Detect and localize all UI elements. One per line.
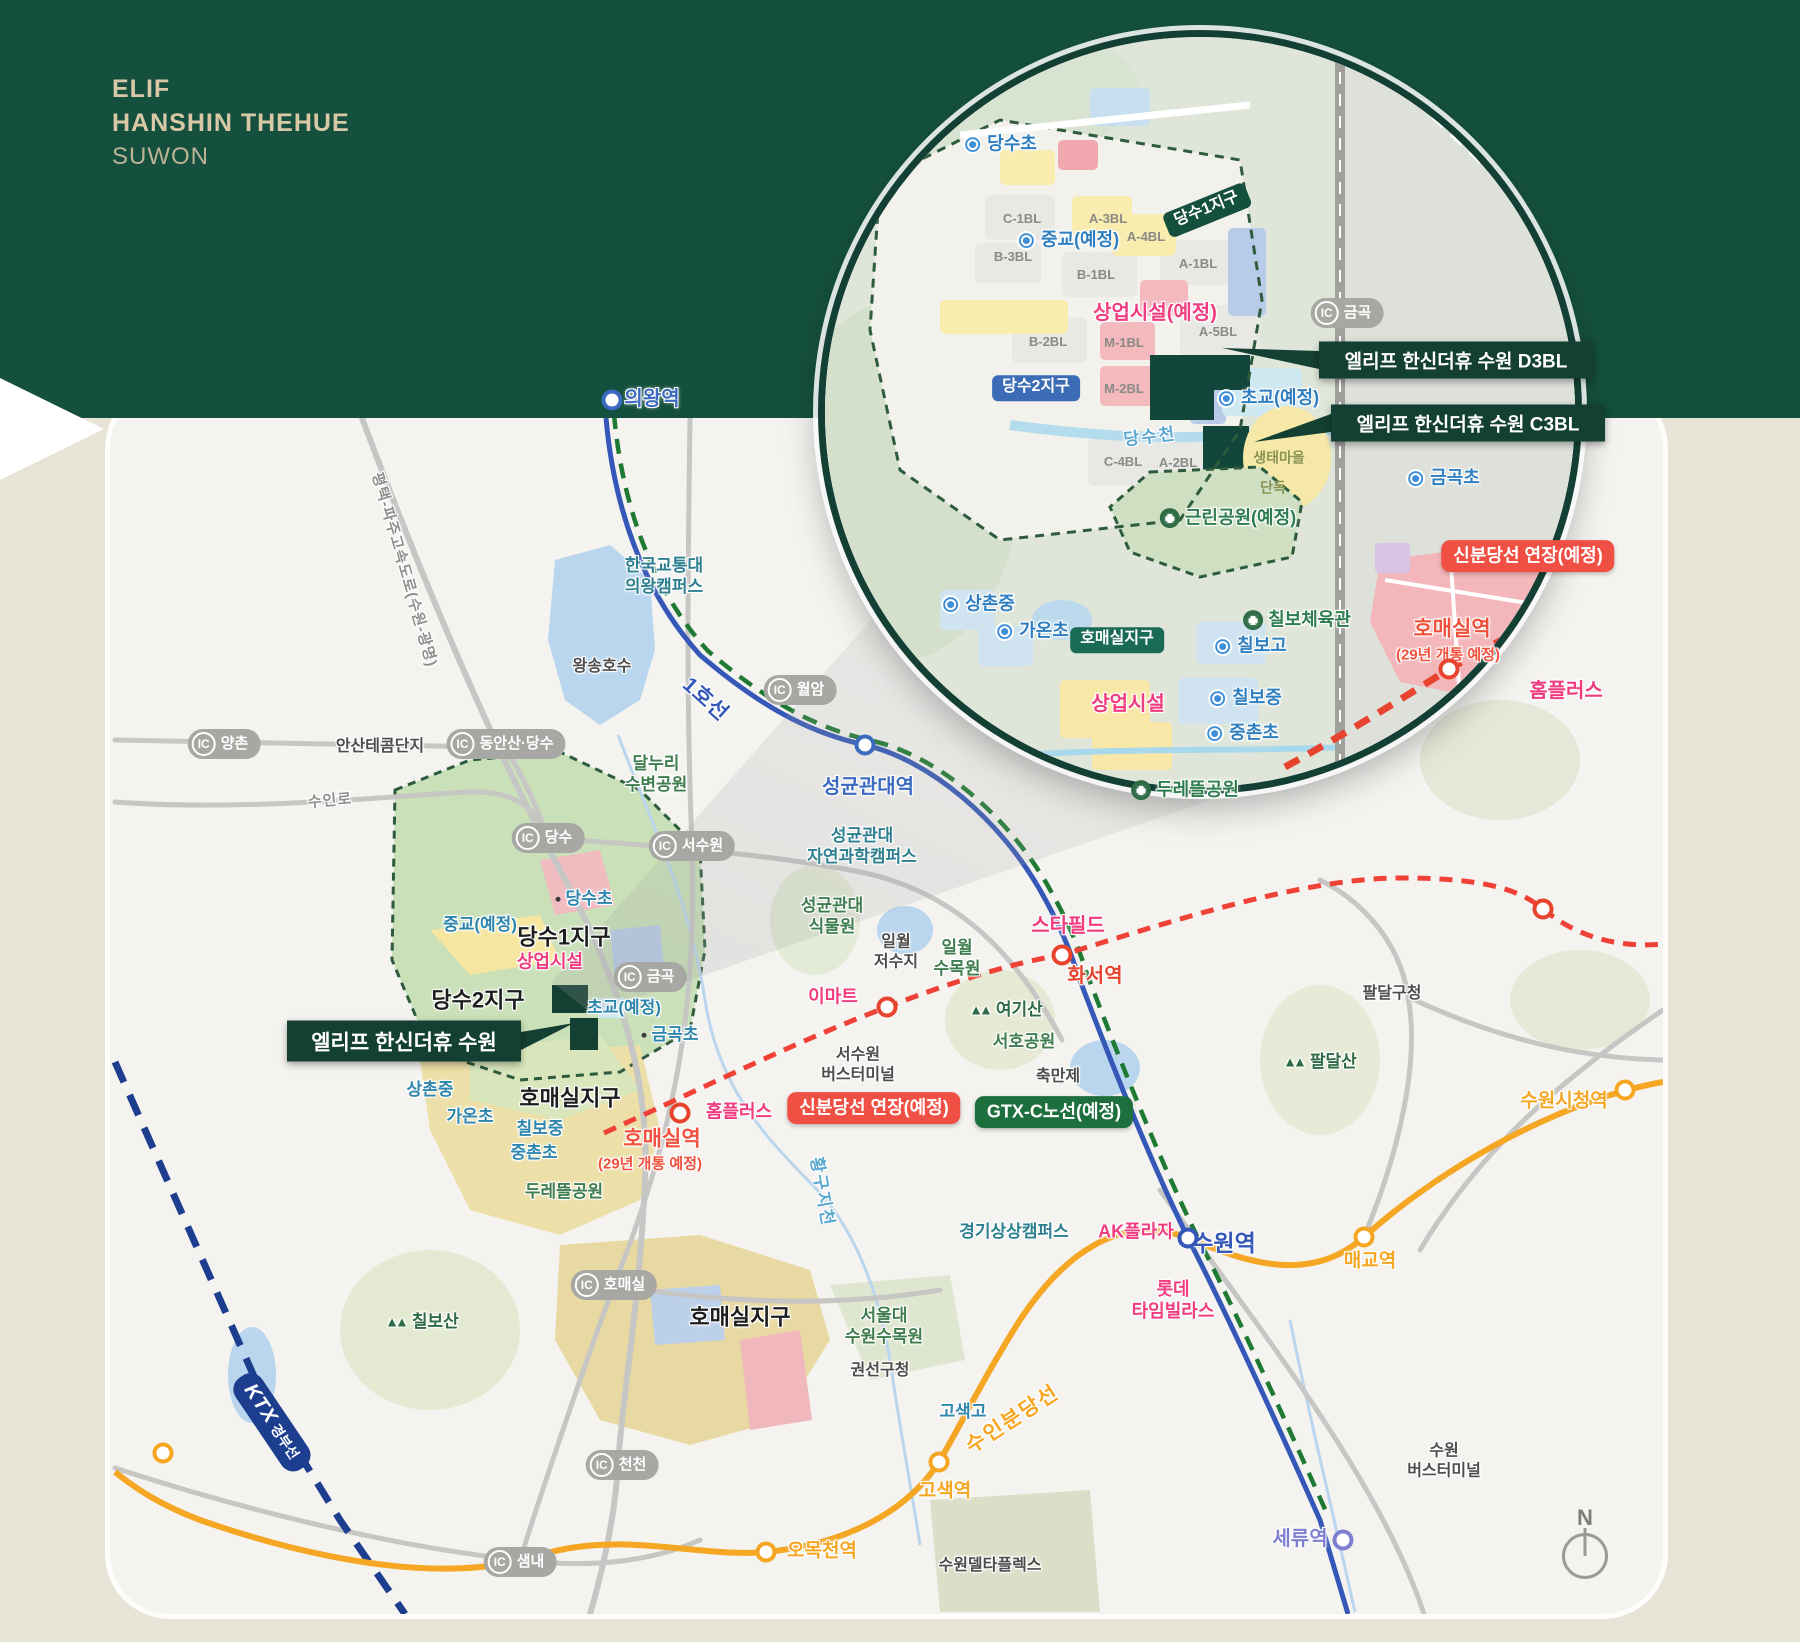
map-label-상업시설: 상업시설 — [517, 951, 583, 973]
map-label-매교역: 매교역 — [1344, 1251, 1396, 1274]
inset-label-칠보체육관: ♣칠보체육관 — [1243, 609, 1351, 631]
map-label-샘내: IC샘내 — [484, 1547, 557, 1577]
interchange-icon: IC — [768, 678, 792, 702]
compass-rose: N — [1560, 1505, 1610, 1579]
interchange-icon: IC — [653, 834, 677, 858]
map-label-화서역: 화서역 — [1067, 965, 1122, 989]
map-label-동안산·당수: IC동안산·당수 — [447, 729, 566, 759]
interchange-icon: IC — [488, 1550, 512, 1574]
school-drop-icon — [963, 135, 982, 154]
inset-label-A-4BL: A-4BL — [1127, 228, 1165, 244]
inset-label-A-1BL: A-1BL — [1179, 255, 1217, 271]
inset-label-칠보고: 칠보고 — [1213, 635, 1287, 657]
map-label-수원역: 수원역 — [1192, 1229, 1255, 1257]
map-label-롯데-타임빌라스: 롯데 타임빌라스 — [1132, 1278, 1215, 1322]
title-line-1: ELIF — [112, 72, 350, 106]
title-line-3: SUWON — [112, 140, 350, 174]
callout-엘리프-한신더휴-수원-C3BL: 엘리프 한신더휴 수원 C3BL — [1331, 405, 1605, 442]
map-label-서수원-버스터미널: 서수원 버스터미널 — [821, 1046, 895, 1085]
map-label-고색역: 고색역 — [919, 1481, 971, 1504]
school-drop-icon — [1205, 724, 1224, 743]
interchange-icon: IC — [192, 732, 216, 756]
map-label-권선구청: 권선구청 — [851, 1362, 910, 1382]
map-label-두레뜰공원: 두레뜰공원 — [525, 1182, 603, 1203]
park-tree-icon: ♣ — [1160, 508, 1180, 528]
school-drop-icon — [1017, 231, 1036, 250]
map-label-안산테콤단지: 안산테콤단지 — [336, 738, 424, 758]
map-label-일월-수목원: 일월 수목원 — [934, 937, 981, 978]
inset-label-단독: 단독 — [1260, 478, 1286, 496]
map-label-축만제: 축만제 — [1036, 1068, 1080, 1088]
map-station-marker — [1354, 1227, 1375, 1248]
inset-label-초교(예정): 초교(예정) — [1217, 387, 1319, 409]
map-station-marker — [855, 735, 876, 756]
school-drop-icon — [1406, 469, 1425, 488]
map-label-성균관대-식물원: 성균관대 식물원 — [801, 895, 864, 936]
inset-label-C-1BL: C-1BL — [1003, 210, 1041, 226]
map-station-marker — [670, 1103, 691, 1124]
page-title: ELIF HANSHIN THEHUE SUWON — [112, 72, 350, 174]
map-label-중교(예정): 중교(예정) — [443, 915, 517, 936]
map-label-오목천역: 오목천역 — [787, 1541, 857, 1564]
map-label-상촌중: 상촌중 — [407, 1080, 454, 1101]
map-station-marker — [1052, 945, 1073, 966]
park-tree-icon: ♣ — [1131, 780, 1151, 800]
inset-label-C-4BL: C-4BL — [1104, 453, 1142, 469]
inset-label-칠보중: 칠보중 — [1208, 687, 1282, 709]
map-label-당수초: 당수초 — [556, 889, 613, 910]
interchange-icon: IC — [1315, 301, 1339, 325]
map-label-(29년-개통-예정): (29년 개통 예정) — [598, 1155, 702, 1173]
map-station-marker — [1533, 899, 1554, 920]
map-label-칠보중: 칠보중 — [517, 1119, 564, 1140]
school-drop-icon — [941, 595, 960, 614]
map-label-달누리-수변공원: 달누리 수변공원 — [625, 753, 688, 794]
map-label-AK플라자: AK플라자 — [1098, 1221, 1174, 1243]
interchange-icon: IC — [618, 965, 642, 989]
map-station-marker — [929, 1452, 950, 1473]
park-tree-icon: ♣ — [1243, 610, 1263, 630]
inset-label-M-2BL: M-2BL — [1104, 380, 1144, 396]
place-dot-icon — [642, 1033, 647, 1038]
inset-label-중교(예정): 중교(예정) — [1017, 229, 1119, 251]
callout-엘리프-한신더휴-수원-D3BL: 엘리프 한신더휴 수원 D3BL — [1319, 342, 1593, 379]
location-map-poster: ELIF HANSHIN THEHUE SUWON — [0, 0, 1800, 1642]
map-label-당수: IC당수 — [512, 823, 585, 853]
school-drop-icon — [1213, 637, 1232, 656]
map-station-marker — [1615, 1080, 1636, 1101]
inset-station-marker — [1439, 659, 1460, 680]
map-label-서호공원: 서호공원 — [993, 1032, 1056, 1053]
map-label-세류역: 세류역 — [1272, 1528, 1327, 1552]
map-label-천천: IC천천 — [586, 1450, 659, 1480]
map-label-수원델타플렉스: 수원델타플렉스 — [938, 1557, 1041, 1577]
title-line-2: HANSHIN THEHUE — [112, 106, 350, 140]
inset-label-금곡: IC금곡 — [1311, 298, 1384, 328]
place-dot-icon — [556, 897, 561, 902]
map-label-호매실지구: 호매실지구 — [689, 1303, 790, 1330]
map-label-중촌초: 중촌초 — [511, 1143, 558, 1164]
mountain-icon: ▲▲ — [969, 1002, 989, 1019]
map-label-월암: IC월암 — [764, 675, 837, 705]
map-label-여기산: ▲▲여기산 — [969, 1000, 1043, 1021]
map-station-marker — [1178, 1228, 1199, 1249]
inset-label-A-3BL: A-3BL — [1089, 210, 1127, 226]
mountain-icon: ▲▲ — [385, 1314, 405, 1331]
compass-icon — [1562, 1533, 1608, 1579]
map-label-호매실지구: 호매실지구 — [519, 1084, 620, 1111]
inset-label-호매실지구: 호매실지구 — [1070, 627, 1164, 653]
mountain-icon: ▲▲ — [1283, 1054, 1303, 1071]
map-station-marker — [756, 1542, 777, 1563]
interchange-icon: IC — [516, 826, 540, 850]
inset-label-중촌초: 중촌초 — [1205, 722, 1279, 744]
school-drop-icon — [995, 622, 1014, 641]
interchange-icon: IC — [590, 1453, 614, 1477]
map-label-GTX-C노선(예정): GTX-C노선(예정) — [975, 1096, 1133, 1128]
map-label-가온초: 가온초 — [447, 1107, 494, 1128]
interchange-icon: IC — [451, 732, 475, 756]
inset-label-호매실역: 호매실역 — [1413, 618, 1490, 643]
map-label-홈플러스: 홈플러스 — [706, 1101, 772, 1123]
map-label-의왕역: 의왕역 — [624, 388, 679, 412]
map-station-marker — [602, 390, 623, 411]
school-drop-icon — [1217, 389, 1236, 408]
map-label-당수1지구: 당수1지구 — [517, 923, 610, 950]
map-label-팔달산: ▲▲팔달산 — [1283, 1052, 1357, 1073]
map-label-왕송호수: 왕송호수 — [573, 658, 632, 678]
map-label-금곡초: 금곡초 — [642, 1025, 699, 1046]
map-label-당수2지구: 당수2지구 — [431, 986, 524, 1013]
inset-label-당수2지구: 당수2지구 — [992, 375, 1080, 401]
inset-label-상업시설(예정): 상업시설(예정) — [1093, 302, 1217, 326]
map-label-성균관대-자연과학캠퍼스: 성균관대 자연과학캠퍼스 — [807, 825, 916, 866]
map-label-경기상상캠퍼스: 경기상상캠퍼스 — [959, 1222, 1068, 1243]
map-label-고색고: 고색고 — [940, 1402, 987, 1423]
map-station-marker — [1333, 1530, 1354, 1551]
inset-label-가온초: 가온초 — [995, 620, 1069, 642]
inset-label-금곡초: 금곡초 — [1406, 467, 1480, 489]
inset-label-B-1BL: B-1BL — [1077, 266, 1115, 282]
inset-label-홈플러스: 홈플러스 — [1529, 680, 1603, 704]
map-label-칠보산: ▲▲칠보산 — [385, 1312, 459, 1333]
map-label-초교(예정): 초교(예정) — [587, 998, 661, 1019]
map-label-서수원: IC서수원 — [649, 831, 735, 861]
inset-label-두레뜰공원: ♣두레뜰공원 — [1131, 779, 1239, 801]
inset-label-B-2BL: B-2BL — [1029, 333, 1067, 349]
map-label-팔달구청: 팔달구청 — [1363, 985, 1422, 1005]
map-label-수원시청역: 수원시청역 — [1520, 1091, 1607, 1114]
inset-label-A-2BL: A-2BL — [1159, 454, 1197, 470]
map-station-marker — [877, 997, 898, 1018]
map-label-일월-저수지: 일월 저수지 — [874, 933, 918, 972]
map-station-marker — [153, 1443, 174, 1464]
map-label-양촌: IC양촌 — [188, 729, 261, 759]
interchange-icon: IC — [575, 1273, 599, 1297]
map-label-금곡: IC금곡 — [614, 962, 687, 992]
inset-label-생태마을: 생태마을 — [1253, 448, 1305, 466]
map-label-한국교통대-의왕캠퍼스: 한국교통대 의왕캠퍼스 — [625, 555, 703, 596]
inset-label-M-1BL: M-1BL — [1104, 334, 1144, 350]
map-label-이마트: 이마트 — [808, 986, 858, 1008]
inset-label-당수초: 당수초 — [963, 133, 1037, 155]
map-label-호매실역: 호매실역 — [623, 1128, 700, 1153]
map-label-수원-버스터미널: 수원 버스터미널 — [1407, 1442, 1481, 1481]
map-label-서울대-수원수목원: 서울대 수원수목원 — [845, 1305, 923, 1346]
map-label-신분당선-연장(예정): 신분당선 연장(예정) — [787, 1092, 960, 1124]
school-drop-icon — [1208, 689, 1227, 708]
inset-label-상촌중: 상촌중 — [941, 593, 1015, 615]
map-label-호매실: IC호매실 — [571, 1270, 657, 1300]
map-label-성균관대역: 성균관대역 — [822, 776, 914, 800]
callout-엘리프-한신더휴-수원: 엘리프 한신더휴 수원 — [287, 1021, 521, 1062]
inset-label-근린공원(예정): ♣근린공원(예정) — [1160, 507, 1296, 529]
inset-label-상업시설: 상업시설 — [1091, 693, 1165, 717]
inset-label-신분당선-연장(예정): 신분당선 연장(예정) — [1441, 540, 1614, 572]
map-label-스타필드: 스타필드 — [1031, 915, 1105, 939]
